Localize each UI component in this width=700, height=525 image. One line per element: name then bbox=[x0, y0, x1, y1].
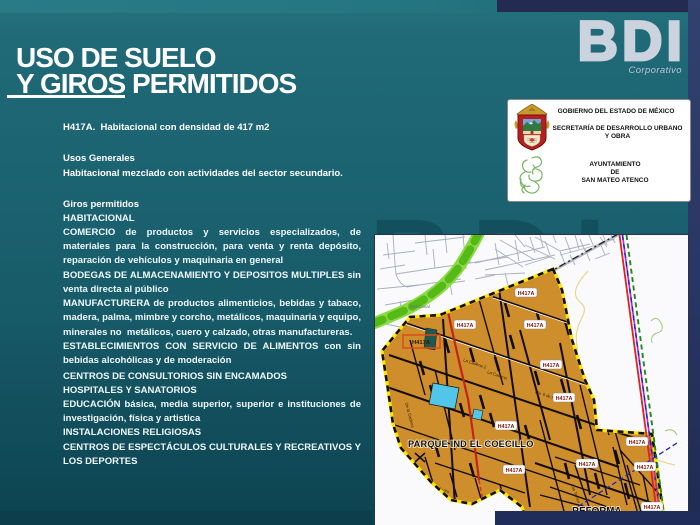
svg-text:PARQUE IND EL COECILLO: PARQUE IND EL COECILLO bbox=[408, 439, 534, 449]
svg-text:H417A: H417A bbox=[412, 340, 431, 346]
svg-text:H417A: H417A bbox=[506, 468, 523, 474]
svg-text:H417A: H417A bbox=[527, 323, 544, 329]
svg-text:H417A: H417A bbox=[579, 462, 596, 468]
svg-text:H417A: H417A bbox=[543, 363, 560, 369]
svg-text:H417A: H417A bbox=[629, 440, 646, 446]
svg-text:H417A: H417A bbox=[457, 323, 474, 329]
svg-text:H417A: H417A bbox=[556, 396, 573, 402]
svg-text:Del Canal: Del Canal bbox=[410, 304, 430, 309]
svg-text:BDI: BDI bbox=[578, 14, 686, 64]
svg-text:H417A: H417A bbox=[498, 424, 515, 430]
svg-text:H417A: H417A bbox=[518, 291, 535, 297]
svg-text:H417A: H417A bbox=[637, 465, 654, 471]
